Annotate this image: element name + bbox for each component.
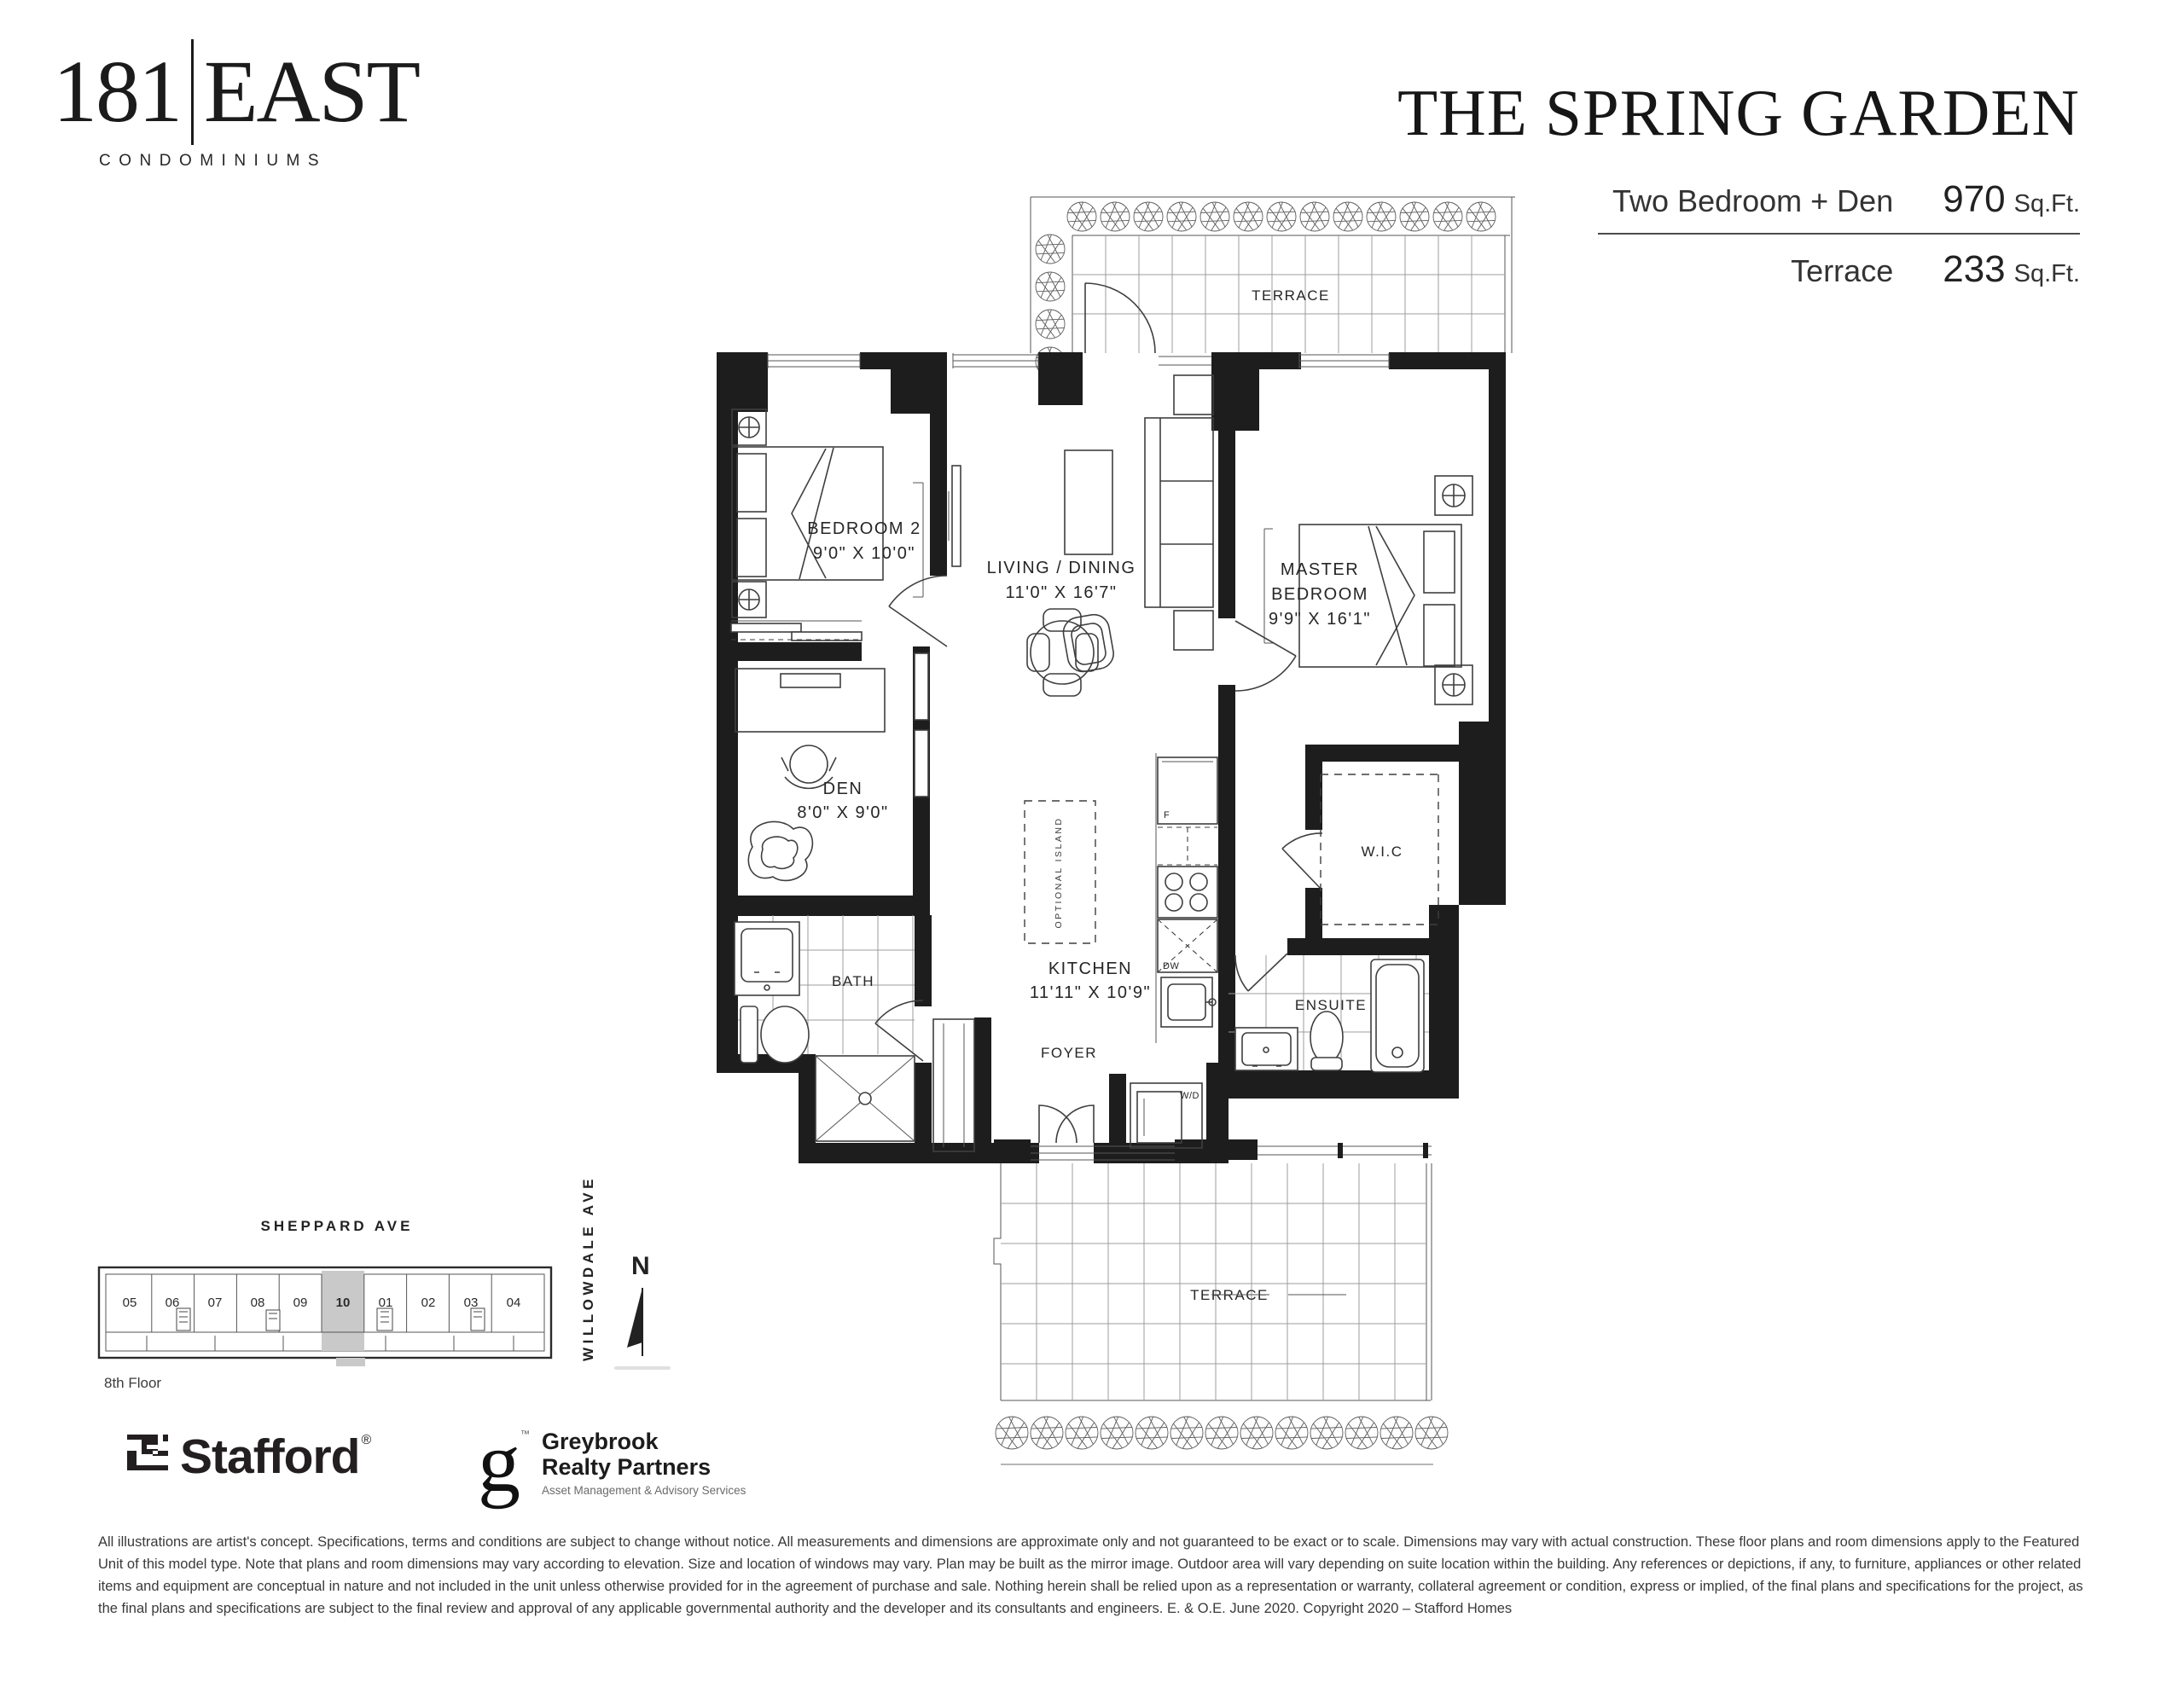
dishwasher: DW xyxy=(1158,919,1217,972)
terrace-top: TERRACE xyxy=(1031,197,1515,376)
bedroom2-dims: 9'0" X 10'0" xyxy=(813,544,915,563)
room-living-dining: LIVING / DINING 11'0" X 16'7" xyxy=(987,375,1213,696)
legal-disclaimer: All illustrations are artist's concept. … xyxy=(98,1531,2093,1620)
pillow xyxy=(737,519,766,577)
toilet xyxy=(741,1006,809,1063)
shower xyxy=(816,1056,915,1141)
fridge: F xyxy=(1158,757,1217,824)
logo-word: EAST xyxy=(204,48,419,136)
den-label: DEN xyxy=(823,780,863,798)
registered-mark: ® xyxy=(361,1433,371,1448)
tv-panel xyxy=(949,466,961,566)
master-label-1: MASTER xyxy=(1281,560,1359,579)
unit-number: 06 xyxy=(166,1296,180,1310)
lamp-icon xyxy=(1443,674,1465,696)
ensuite-label: ENSUITE xyxy=(1295,997,1367,1013)
greybrook-name-line2: Realty Partners xyxy=(542,1455,746,1481)
unit-number: 07 xyxy=(208,1296,223,1310)
unit-number-highlighted: 10 xyxy=(336,1296,351,1310)
ensuite-sink xyxy=(1235,1028,1298,1070)
bedroom2-label: BEDROOM 2 xyxy=(807,519,921,538)
counter xyxy=(1158,827,1217,865)
room-bedroom2: BEDROOM 2 9'0" X 10'0" xyxy=(731,409,961,646)
room-master-bedroom: MASTER BEDROOM 9'9" X 16'1" xyxy=(1235,476,1472,704)
fridge-label: F xyxy=(1164,810,1170,820)
north-arrow: N xyxy=(613,1247,672,1383)
logo-number: 181 xyxy=(53,48,181,136)
spec-row-terrace: Terrace 233 Sq.Ft. xyxy=(1598,248,2080,291)
bath-door-swing xyxy=(875,1000,923,1061)
lamp-icon xyxy=(1443,484,1465,507)
terrace-area-unit: Sq.Ft. xyxy=(2014,260,2080,288)
unit-number: 01 xyxy=(379,1296,393,1310)
unit-number: 02 xyxy=(421,1296,436,1310)
logo-divider-bar xyxy=(191,39,194,145)
unit-number: 05 xyxy=(123,1296,137,1310)
street-label-right: WILLOWDALE AVE xyxy=(580,1175,597,1361)
terrace-top-label: TERRACE xyxy=(1252,287,1330,304)
den-door-panel xyxy=(915,653,928,720)
den-dims: 8'0" X 9'0" xyxy=(797,803,888,822)
bedroom2-door-swing xyxy=(889,576,947,646)
foyer-closet xyxy=(933,1019,974,1151)
north-label: N xyxy=(631,1252,650,1280)
greybrook-tagline: Asset Management & Advisory Services xyxy=(542,1484,746,1497)
bath-sink xyxy=(735,922,799,995)
wic-door-swing xyxy=(1282,833,1322,890)
floorplan: TERRACE xyxy=(700,194,1519,1474)
terrace-bottom-tiles xyxy=(1001,1163,1426,1400)
ensuite-door-swing xyxy=(1235,954,1287,991)
suite-area-value: 970 xyxy=(1943,178,2005,221)
unit-number: 08 xyxy=(251,1296,265,1310)
washer-dryer: W/D xyxy=(1130,1083,1202,1148)
unit-number: 09 xyxy=(293,1296,308,1310)
greybrook-name-line1: Greybrook xyxy=(542,1429,746,1455)
keyplan: SHEPPARD AVE 05 06 07 08 09 10 01 02 03 … xyxy=(96,1218,578,1377)
floorplan-drawing: TERRACE xyxy=(700,194,1519,1474)
kitchen-sink xyxy=(1161,977,1216,1027)
suite-area-unit: Sq.Ft. xyxy=(2014,190,2080,218)
terrace-bottom: TERRACE xyxy=(994,1143,1448,1474)
street-label-top: SHEPPARD AVE xyxy=(96,1218,578,1235)
logo-subtitle: CONDOMINIUMS xyxy=(99,152,419,171)
suite-type-label: Two Bedroom + Den xyxy=(1612,183,1893,219)
coffee-table xyxy=(1065,450,1112,554)
master-dims: 9'9" X 16'1" xyxy=(1269,610,1371,629)
dining-table xyxy=(1031,621,1094,684)
side-table xyxy=(1174,375,1213,415)
cooktop xyxy=(1158,867,1217,918)
sofa xyxy=(1145,418,1213,607)
desk xyxy=(735,669,885,732)
stafford-wordmark: Stafford xyxy=(180,1433,359,1481)
blanket-fold xyxy=(1368,526,1414,665)
washer-dryer-label: W/D xyxy=(1180,1091,1199,1101)
highlighted-unit-cell xyxy=(322,1271,364,1351)
kitchen-label: KITCHEN xyxy=(1048,959,1132,978)
terrace-label: Terrace xyxy=(1791,253,1893,289)
living-dims: 11'0" X 16'7" xyxy=(1005,583,1117,602)
terrace-door-swing xyxy=(1085,283,1155,353)
brand-logo: 181 EAST CONDOMINIUMS xyxy=(53,39,419,171)
wic-label: W.I.C xyxy=(1361,843,1403,860)
greybrook-logo: g ™ Greybrook Realty Partners Asset Mana… xyxy=(478,1429,746,1497)
lounge-chair xyxy=(748,821,812,880)
room-den: DEN 8'0" X 9'0" xyxy=(735,653,928,880)
spec-divider xyxy=(1598,233,2080,235)
spec-row-suite: Two Bedroom + Den 970 Sq.Ft. xyxy=(1598,178,2080,221)
master-label-2: BEDROOM xyxy=(1271,585,1368,604)
pillow xyxy=(1424,605,1455,666)
living-label: LIVING / DINING xyxy=(987,559,1136,577)
toilet xyxy=(1310,1012,1343,1070)
bath-label: BATH xyxy=(832,973,874,989)
room-ensuite: ENSUITE xyxy=(1228,954,1429,1072)
side-table xyxy=(1174,611,1213,650)
dishwasher-label: DW xyxy=(1163,961,1179,971)
room-bath: BATH xyxy=(735,915,923,1141)
master-door-swing xyxy=(1235,621,1296,691)
greybrook-monogram: g xyxy=(478,1429,520,1496)
terrace-area-value: 233 xyxy=(1943,248,2005,291)
kitchen-dims: 11'11" X 10'9" xyxy=(1030,983,1151,1002)
keyplan-core-tab xyxy=(336,1358,365,1366)
desk-monitor xyxy=(781,674,840,687)
closet-slider xyxy=(731,623,801,632)
lamp-icon xyxy=(739,417,759,438)
den-door-panel xyxy=(915,730,928,797)
unit-number: 03 xyxy=(464,1296,479,1310)
unit-number: 04 xyxy=(507,1296,521,1310)
optional-island-label: OPTIONAL ISLAND xyxy=(1054,816,1064,928)
trademark-mark: ™ xyxy=(520,1429,530,1440)
terrace-bottom-planting xyxy=(996,1417,1448,1449)
north-arrow-head xyxy=(627,1288,642,1348)
page-title: THE SPRING GARDEN xyxy=(1397,75,2080,151)
floor-label: 8th Floor xyxy=(104,1375,161,1392)
stafford-logo: Stafford ® xyxy=(124,1433,371,1481)
keyplan-drawing: 05 06 07 08 09 10 01 02 03 04 xyxy=(96,1257,573,1373)
pillow xyxy=(737,454,766,512)
foyer-label: FOYER xyxy=(1041,1045,1097,1061)
pillow xyxy=(1424,531,1455,593)
bathtub xyxy=(1371,959,1424,1072)
dining-set xyxy=(1027,609,1098,696)
lamp-icon xyxy=(739,589,759,610)
stafford-mark-icon xyxy=(124,1433,171,1472)
